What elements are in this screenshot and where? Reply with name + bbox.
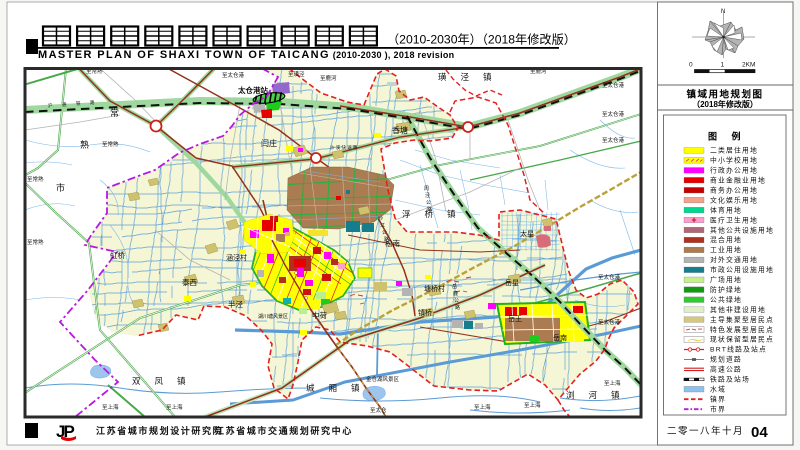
svg-text:至上海: 至上海 <box>604 379 621 387</box>
svg-text:璜泾镇: 璜泾镇 <box>438 72 506 82</box>
svg-text:MASTER PLAN OF SHAXI TOWN OF T: MASTER PLAN OF SHAXI TOWN OF TAICANG (20… <box>38 49 454 61</box>
svg-text:市政公用设施用地: 市政公用设施用地 <box>710 265 774 274</box>
svg-text:沪: 沪 <box>48 102 53 109</box>
svg-text:市: 市 <box>56 182 65 193</box>
svg-text:浮桥镇: 浮桥镇 <box>402 209 470 219</box>
svg-text:至上海: 至上海 <box>102 403 119 411</box>
svg-text:城厢镇: 城厢镇 <box>306 383 374 393</box>
svg-text:中小学校用地: 中小学校用地 <box>710 156 758 165</box>
svg-text:其他公共设施用地: 其他公共设施用地 <box>710 225 774 234</box>
svg-text:至太仓港: 至太仓港 <box>598 273 621 281</box>
svg-text:涵泾村: 涵泾村 <box>226 253 247 262</box>
svg-text:现状保留型居民点: 现状保留型居民点 <box>710 335 774 344</box>
svg-text:双凤镇: 双凤镇 <box>132 376 200 386</box>
svg-text:太星: 太星 <box>520 229 534 238</box>
svg-text:中荷: 中荷 <box>312 310 327 320</box>
svg-text:水域: 水域 <box>710 385 726 394</box>
svg-text:主导集聚型居民点: 主导集聚型居民点 <box>710 315 774 324</box>
svg-text:至璜泾: 至璜泾 <box>288 70 305 78</box>
svg-text:市界: 市界 <box>710 404 726 413</box>
svg-text:镇界: 镇界 <box>710 394 726 403</box>
svg-text:商业金融业用地: 商业金融业用地 <box>710 176 766 185</box>
svg-text:铁路及站场: 铁路及站场 <box>710 375 750 384</box>
svg-text:工业用地: 工业用地 <box>710 245 742 254</box>
svg-text:至太仓港: 至太仓港 <box>602 136 625 144</box>
svg-text:至常熟: 至常熟 <box>102 140 119 148</box>
svg-text:特色发展型居民点: 特色发展型居民点 <box>710 325 774 334</box>
svg-text:（2018年修改版）: （2018年修改版） <box>692 99 758 109</box>
svg-text:商务办公用地: 商务办公用地 <box>710 186 758 195</box>
svg-text:混合用地: 混合用地 <box>710 235 742 244</box>
svg-text:2KM: 2KM <box>742 62 755 69</box>
svg-text:体育用地: 体育用地 <box>710 205 742 214</box>
svg-text:文化娱乐用地: 文化娱乐用地 <box>710 195 758 204</box>
svg-text:至常熟: 至常熟 <box>27 238 44 246</box>
svg-text:浏河镇: 浏河镇 <box>566 390 634 400</box>
svg-text:04: 04 <box>751 424 768 441</box>
svg-text:泰西: 泰西 <box>182 277 197 287</box>
svg-text:至太仓: 至太仓 <box>370 406 387 414</box>
svg-text:0: 0 <box>689 62 693 69</box>
svg-text:广场用地: 广场用地 <box>710 275 742 284</box>
svg-text:太仓港站: 太仓港站 <box>238 85 268 95</box>
svg-text:至上海: 至上海 <box>474 403 491 411</box>
svg-text:塘桥村: 塘桥村 <box>424 284 445 293</box>
svg-text:至太仓港: 至太仓港 <box>602 110 625 118</box>
svg-text:常: 常 <box>110 107 119 118</box>
svg-text:至太仓港: 至太仓港 <box>222 71 245 79</box>
svg-text:行政办公用地: 行政办公用地 <box>710 166 758 175</box>
svg-text:二零一八年十月: 二零一八年十月 <box>667 425 744 437</box>
svg-text:江苏省城市规划设计研究院: 江苏省城市规划设计研究院 <box>96 425 223 436</box>
svg-text:公共绿地: 公共绿地 <box>710 295 742 304</box>
svg-text:江苏省城市交通规划研究中心: 江苏省城市交通规划研究中心 <box>215 425 353 436</box>
svg-text:岳星: 岳星 <box>505 279 519 287</box>
svg-text:其他非建设用地: 其他非建设用地 <box>710 305 766 314</box>
svg-text:沙 溪 快 速 路: 沙 溪 快 速 路 <box>330 144 358 151</box>
svg-text:1: 1 <box>721 62 725 69</box>
svg-text:至太仓港: 至太仓港 <box>598 318 621 326</box>
svg-text:半泾: 半泾 <box>228 299 243 309</box>
svg-text:二类居住用地: 二类居住用地 <box>710 146 758 155</box>
svg-text:岳王: 岳王 <box>508 315 522 323</box>
svg-text:香塘: 香塘 <box>392 125 408 135</box>
svg-text:熟: 熟 <box>80 139 89 150</box>
svg-text:（2010-2030年）（2018年修改版）: （2010-2030年）（2018年修改版） <box>387 32 576 47</box>
svg-text:至常熟: 至常熟 <box>27 175 44 183</box>
svg-text:闫庄: 闫庄 <box>261 138 277 148</box>
svg-text:高速公路: 高速公路 <box>710 365 742 374</box>
svg-text:金仓湖风景区: 金仓湖风景区 <box>366 375 400 383</box>
svg-text:对外交通用地: 对外交通用地 <box>710 255 758 264</box>
svg-text:通: 通 <box>62 101 67 108</box>
svg-text:湖川塘风景区: 湖川塘风景区 <box>258 313 288 320</box>
svg-text:至上海: 至上海 <box>524 401 541 409</box>
svg-text:路: 路 <box>90 99 95 106</box>
svg-text:至上海: 至上海 <box>166 403 183 411</box>
svg-text:镇域用地规划图: 镇域用地规划图 <box>686 89 763 101</box>
svg-text:岳南: 岳南 <box>553 333 567 342</box>
svg-text:图 例: 图 例 <box>708 131 747 142</box>
svg-text:BRT线路及站点: BRT线路及站点 <box>710 345 767 354</box>
svg-text:铁: 铁 <box>76 100 81 107</box>
svg-text:防护绿地: 防护绿地 <box>710 285 742 294</box>
svg-text:规划道路: 规划道路 <box>710 355 742 364</box>
svg-text:镇桥: 镇桥 <box>418 308 432 317</box>
svg-text:至鹿河: 至鹿河 <box>320 74 337 82</box>
svg-text:至太仓港: 至太仓港 <box>602 81 625 89</box>
svg-text:N: N <box>721 9 725 15</box>
svg-text:虹桥: 虹桥 <box>110 250 125 260</box>
svg-text:医疗卫生用地: 医疗卫生用地 <box>710 215 758 224</box>
